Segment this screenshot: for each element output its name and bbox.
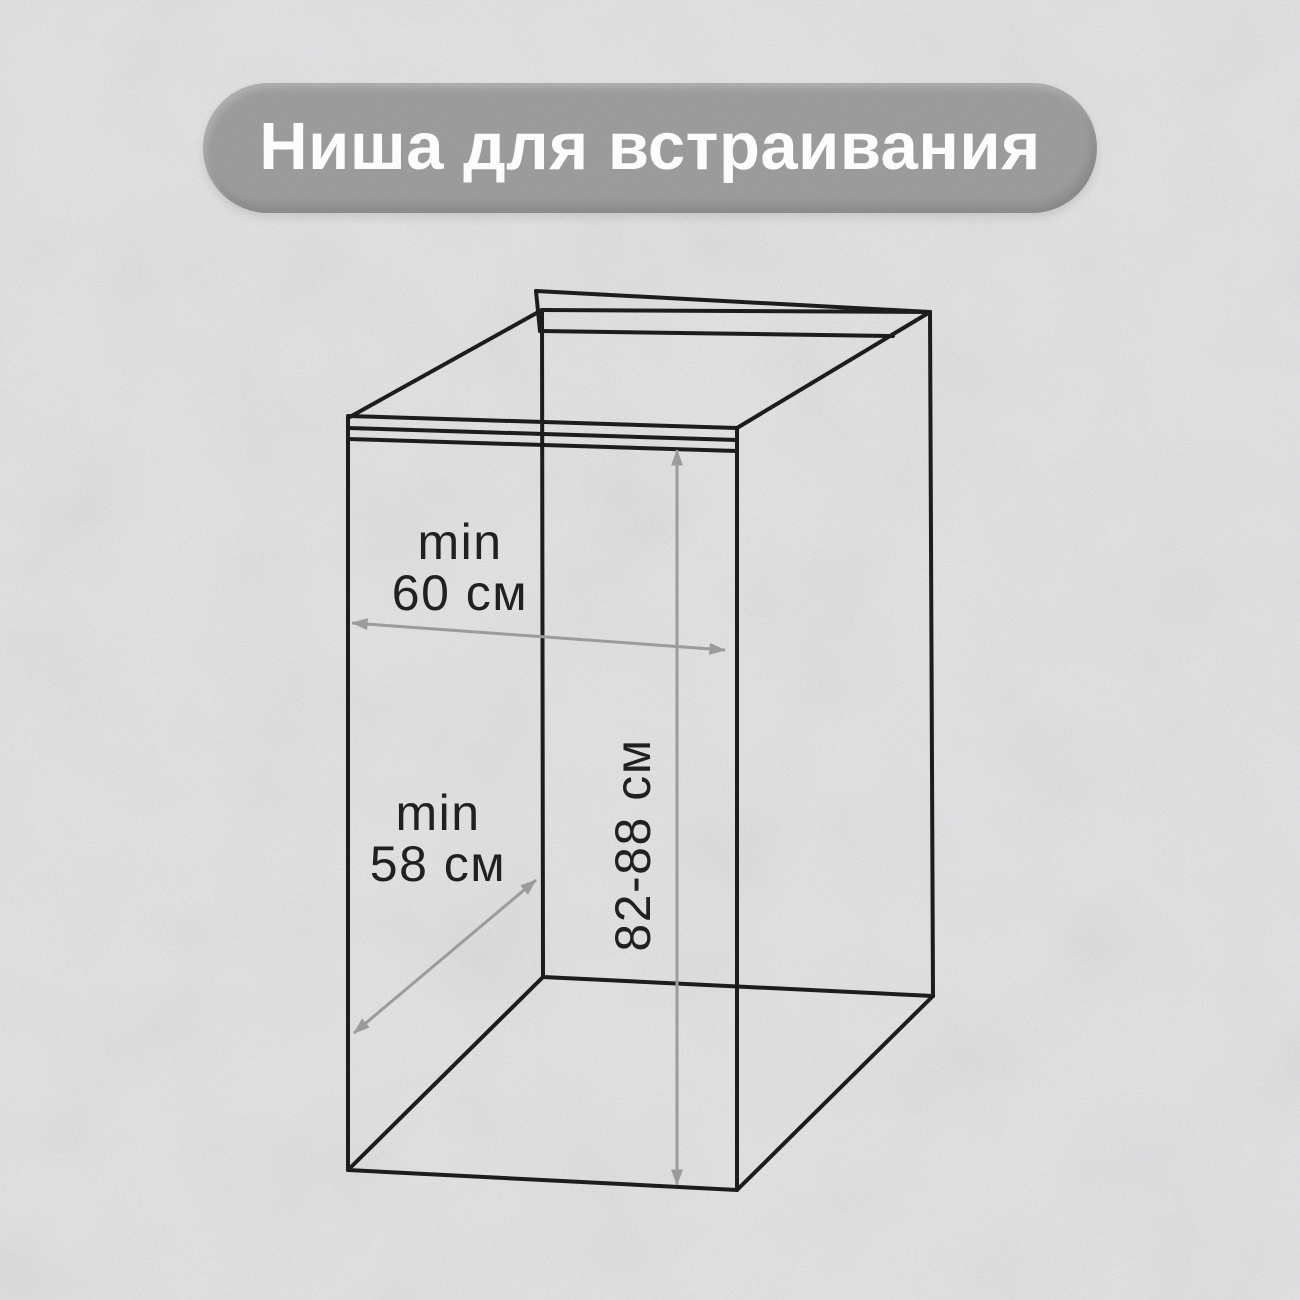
edge-back-right <box>930 312 933 996</box>
width-min-text: min <box>340 517 580 568</box>
width-dimension-label: min 60 см <box>340 517 580 619</box>
edge-top-right <box>737 312 930 428</box>
title-pill: Ниша для встраивания <box>203 83 1097 213</box>
width-value-text: 60 см <box>340 568 580 619</box>
height-dimension-label: 82-88 см <box>605 715 661 975</box>
infographic-canvas: Ниша для встраивания <box>0 0 1300 1300</box>
depth-value-text: 58 см <box>318 839 558 890</box>
back-rail-end-cap <box>536 291 540 331</box>
edge-bottom-right <box>737 996 933 1190</box>
width-dimension-arrow <box>352 623 725 650</box>
edge-bottom-front <box>348 1170 737 1190</box>
depth-dimension-label: min 58 см <box>318 788 558 890</box>
height-value-text: 82-88 см <box>605 715 661 975</box>
back-rail-bottom <box>540 331 893 336</box>
title-text: Ниша для встраивания <box>259 108 1040 185</box>
edge-top-left <box>348 310 542 418</box>
depth-min-text: min <box>318 788 558 839</box>
edge-bottom-left <box>348 977 543 1170</box>
